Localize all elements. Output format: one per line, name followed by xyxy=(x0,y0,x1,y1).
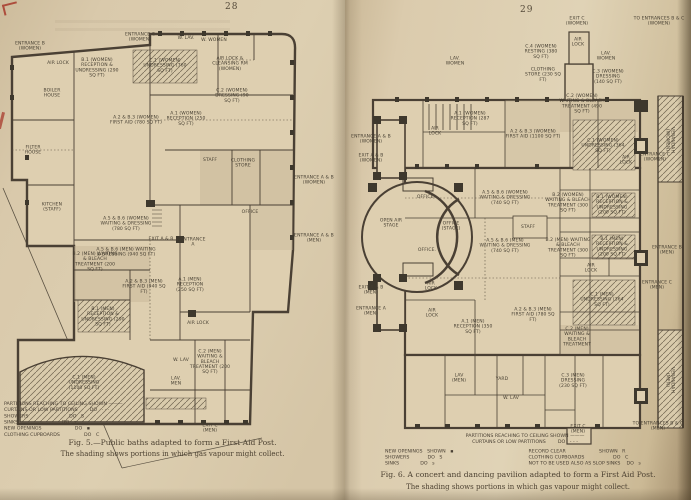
fig6-legend: PARTITIONS REACHING TO CEILING SHOWN ———… xyxy=(385,433,665,467)
fig5-legend: PARTITIONS REACHING TO CEILING SHOWN ———… xyxy=(4,401,154,438)
fig6-floor-plan xyxy=(345,0,691,500)
legend-row: SINKS DO s xyxy=(385,461,522,467)
right-page: 29 xyxy=(345,0,691,500)
book-scan: 28 xyxy=(0,0,691,500)
legend-row: CURTAINS OR LOW PARTITIONS DO - - - xyxy=(385,439,665,445)
left-page: 28 xyxy=(0,0,345,500)
fig6-legend-column-left: NEW OPENINGS SHOWN ▪SHOWERS DO SSINKS DO… xyxy=(385,448,522,467)
legend-row: NOT TO BE USED ALSO AS SLOP SINKS DO s xyxy=(529,461,666,467)
bottom-shadow xyxy=(0,488,691,500)
fig6-legend-header: PARTITIONS REACHING TO CEILING SHOWN ———… xyxy=(385,433,665,445)
fig5-caption-note: The shading shows portions in which gas … xyxy=(0,450,345,458)
fig6-caption: Fig. 6. A concert and dancing pavilion a… xyxy=(345,470,691,479)
fig5-caption: Fig. 5.—Public baths adapted to form a F… xyxy=(0,438,345,447)
fig6-legend-column-right: RECORD CLEAR SHOWN RCLOTHING CUPBOARDS D… xyxy=(529,448,666,467)
book-gutter-shadow xyxy=(332,0,362,500)
page-edge-shadow xyxy=(677,0,691,500)
